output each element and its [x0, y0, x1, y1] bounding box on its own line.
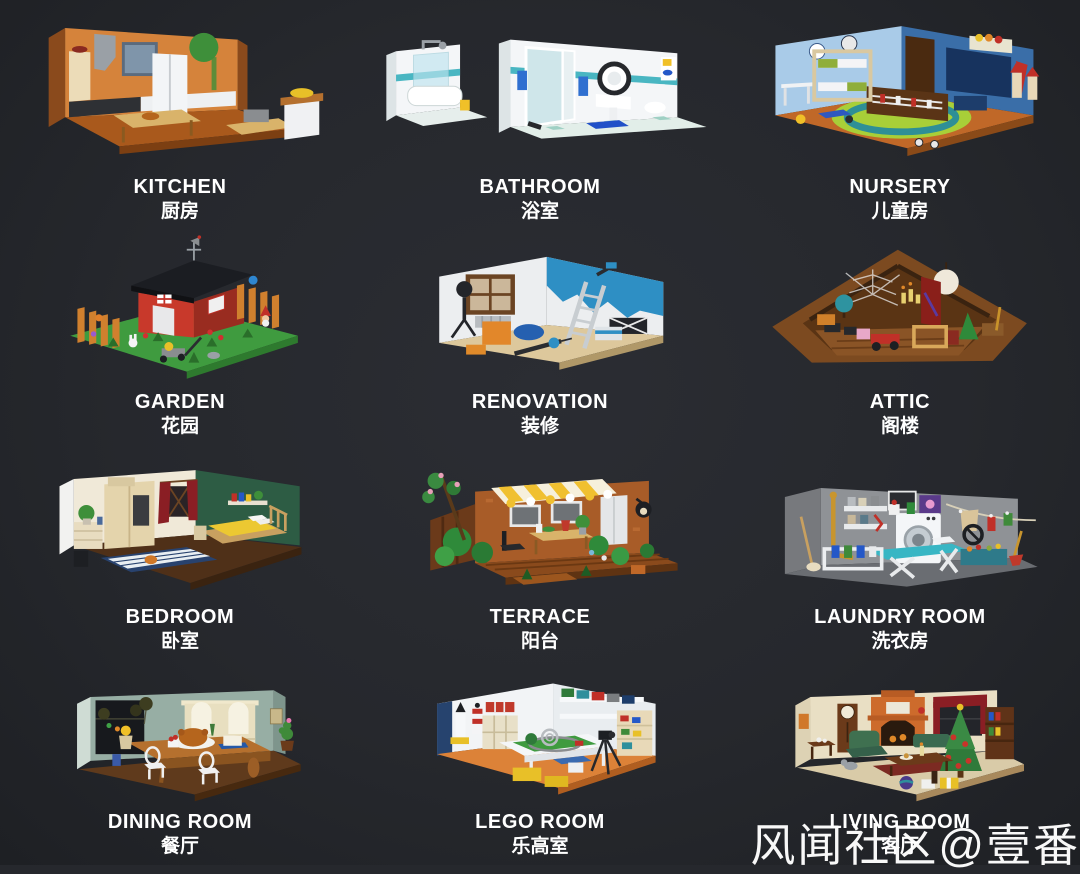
room-name-en: BEDROOM	[126, 606, 235, 629]
room-name-en: LAUNDRY ROOM	[814, 606, 986, 629]
room-name-zh: 儿童房	[871, 200, 928, 225]
room-card-dining: DINING ROOM 餐厅	[0, 660, 360, 865]
attic-illustration	[725, 230, 1074, 391]
lego-rooms-poster: KITCHEN 厨房	[0, 0, 1080, 865]
dining-art	[0, 660, 360, 811]
room-name-zh: 阁楼	[881, 415, 919, 440]
room-name-en: TERRACE	[490, 606, 591, 629]
room-card-terrace: TERRACE 阳台	[360, 445, 720, 660]
bathroom-art	[360, 0, 720, 176]
bathroom-tub-module	[387, 42, 488, 126]
kitchen-illustration	[5, 0, 354, 176]
room-name-zh: 卧室	[161, 630, 199, 655]
garden-shed	[132, 235, 254, 337]
renovation-art	[360, 230, 720, 391]
room-card-kitchen: KITCHEN 厨房	[0, 0, 360, 230]
room-name-zh: 乐高室	[511, 835, 568, 860]
rooms-grid: KITCHEN 厨房	[0, 0, 1080, 865]
nursery-art	[720, 0, 1080, 176]
garden-illustration	[5, 230, 354, 391]
lego-art	[360, 660, 720, 811]
room-name-en: LEGO ROOM	[475, 811, 605, 834]
lego-room-illustration	[365, 660, 714, 811]
room-name-en: RENOVATION	[472, 391, 608, 414]
room-name-zh: 洗衣房	[871, 630, 928, 655]
room-card-laundry: LAUNDRY ROOM 洗衣房	[720, 445, 1080, 660]
room-card-garden: GARDEN 花园	[0, 230, 360, 445]
terrace-art	[360, 445, 720, 606]
room-name-en: KITCHEN	[133, 176, 226, 199]
room-card-bathroom: BATHROOM 浴室	[360, 0, 720, 230]
room-name-zh: 厨房	[161, 200, 199, 225]
nursery-illustration	[725, 0, 1074, 176]
kitchen-art	[0, 0, 360, 176]
laundry-illustration	[725, 445, 1074, 606]
room-card-lego: LEGO ROOM 乐高室	[360, 660, 720, 865]
room-card-nursery: NURSERY 儿童房	[720, 0, 1080, 230]
room-name-en: GARDEN	[135, 391, 225, 414]
room-name-en: DINING ROOM	[108, 811, 252, 834]
bathroom-illustration	[365, 0, 714, 176]
attic-art	[720, 230, 1080, 391]
living-art	[720, 660, 1080, 811]
bedroom-art	[0, 445, 360, 606]
room-name-zh: 餐厅	[161, 835, 199, 860]
garden-art	[0, 230, 360, 391]
dining-illustration	[5, 660, 354, 811]
room-name-zh: 花园	[161, 415, 199, 440]
bedroom-illustration	[5, 445, 354, 606]
room-card-renovation: RENOVATION 装修	[360, 230, 720, 445]
room-name-zh: 阳台	[521, 630, 559, 655]
room-card-bedroom: BEDROOM 卧室	[0, 445, 360, 660]
attic-shell	[773, 250, 1028, 363]
watermark-text: 风闻社区@壹番	[750, 809, 1080, 874]
renovation-illustration	[365, 230, 714, 391]
living-room-illustration	[725, 660, 1074, 811]
room-name-zh: 装修	[521, 415, 559, 440]
bathroom-main-module	[499, 40, 707, 139]
room-name-en: NURSERY	[849, 176, 950, 199]
room-card-attic: ATTIC 阁楼	[720, 230, 1080, 445]
laundry-art	[720, 445, 1080, 606]
room-name-en: BATHROOM	[479, 176, 600, 199]
terrace-illustration	[365, 445, 714, 606]
room-name-en: ATTIC	[870, 391, 930, 414]
room-name-zh: 浴室	[521, 200, 559, 225]
